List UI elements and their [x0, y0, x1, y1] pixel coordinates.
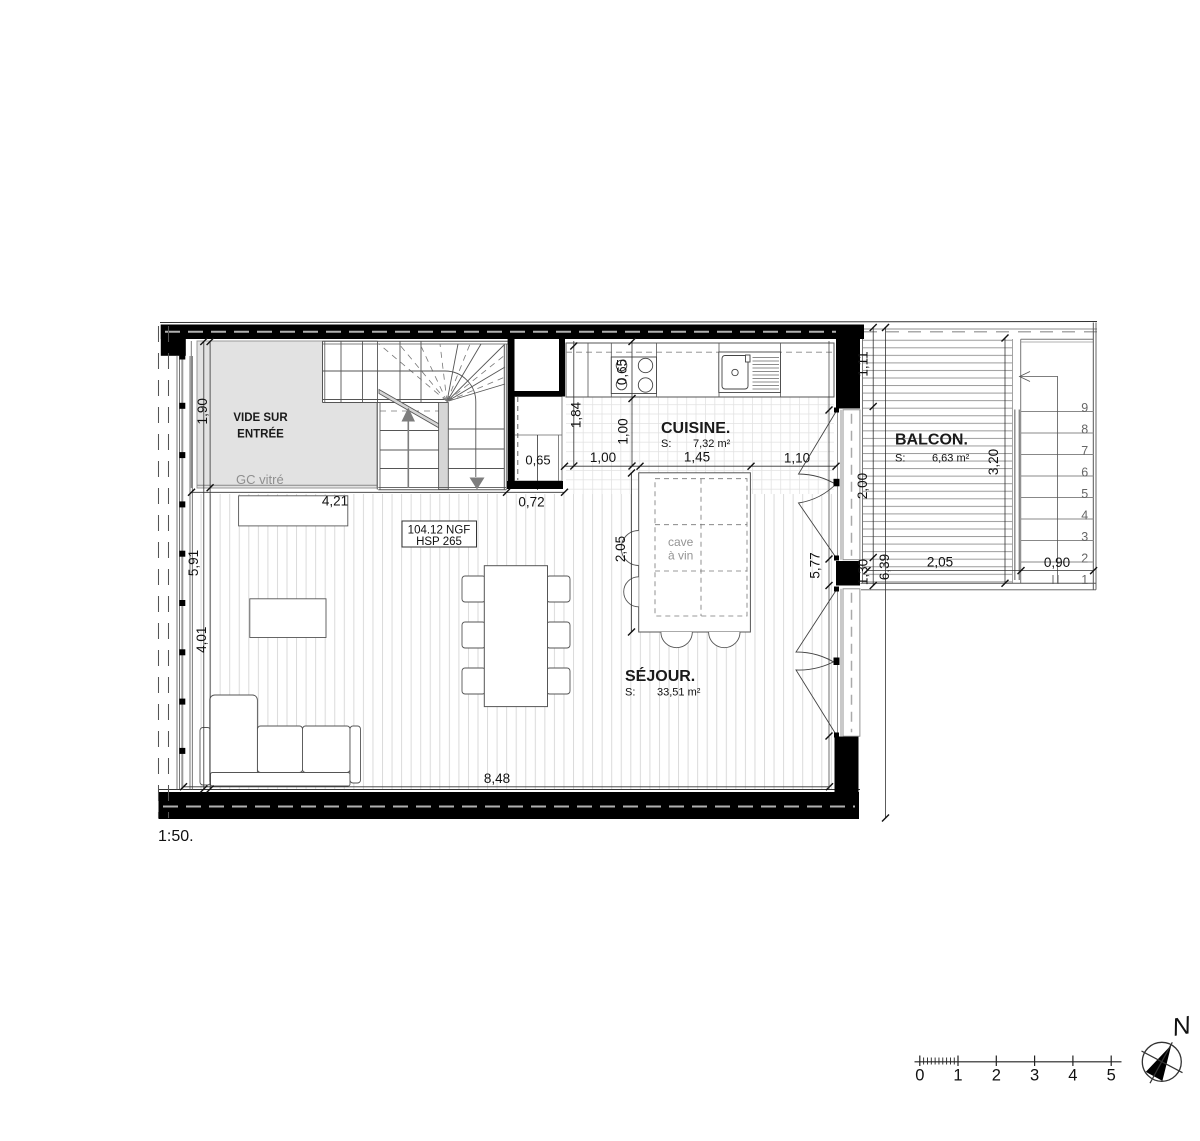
svg-text:1,00: 1,00	[616, 418, 631, 444]
svg-text:2: 2	[992, 1067, 1001, 1085]
svg-text:4,21: 4,21	[322, 494, 348, 509]
svg-text:3,20: 3,20	[986, 449, 1001, 475]
svg-text:9: 9	[1081, 401, 1088, 415]
svg-text:0,65: 0,65	[525, 453, 550, 468]
svg-text:4: 4	[1081, 509, 1088, 523]
svg-text:S:: S:	[625, 687, 635, 699]
svg-text:2,00: 2,00	[855, 473, 870, 499]
svg-text:5: 5	[1081, 487, 1088, 501]
svg-text:7,32 m²: 7,32 m²	[693, 438, 731, 450]
svg-text:1,10: 1,10	[784, 451, 810, 466]
svg-text:0: 0	[915, 1067, 924, 1085]
svg-text:6,39: 6,39	[877, 554, 892, 580]
svg-text:2,05: 2,05	[927, 555, 953, 570]
svg-text:8,48: 8,48	[484, 771, 510, 786]
svg-text:5,77: 5,77	[808, 552, 823, 578]
svg-text:VIDE SUR: VIDE SUR	[233, 412, 288, 424]
svg-text:N: N	[1170, 1011, 1194, 1042]
svg-text:0,65: 0,65	[615, 359, 630, 385]
svg-text:1: 1	[1081, 573, 1088, 587]
svg-text:6,63 m²: 6,63 m²	[932, 453, 970, 465]
svg-text:SÉJOUR.: SÉJOUR.	[625, 666, 695, 685]
svg-text:1,84: 1,84	[569, 401, 584, 428]
svg-text:S:: S:	[895, 453, 905, 465]
svg-text:3: 3	[1030, 1067, 1039, 1085]
svg-text:5,91: 5,91	[186, 550, 201, 576]
svg-text:5: 5	[1107, 1067, 1116, 1085]
svg-text:1,45: 1,45	[684, 450, 710, 465]
svg-text:3: 3	[1081, 530, 1088, 544]
svg-text:1:50.: 1:50.	[158, 828, 194, 845]
svg-text:HSP 265: HSP 265	[416, 536, 462, 548]
svg-text:1: 1	[953, 1067, 962, 1085]
svg-text:BALCON.: BALCON.	[895, 432, 968, 449]
svg-text:S:: S:	[661, 438, 671, 450]
svg-text:CUISINE.: CUISINE.	[661, 420, 730, 437]
svg-text:7: 7	[1081, 444, 1088, 458]
svg-text:1,30: 1,30	[856, 559, 871, 585]
svg-text:104.12 NGF: 104.12 NGF	[408, 525, 471, 537]
svg-text:2: 2	[1081, 552, 1088, 566]
svg-text:2,05: 2,05	[613, 536, 628, 562]
svg-text:cave: cave	[668, 535, 694, 549]
svg-text:8: 8	[1081, 423, 1088, 437]
svg-text:4: 4	[1068, 1067, 1077, 1085]
svg-text:1,11: 1,11	[856, 351, 871, 376]
svg-text:6: 6	[1081, 466, 1088, 480]
svg-text:33,51 m²: 33,51 m²	[657, 687, 701, 699]
svg-text:1,00: 1,00	[590, 450, 616, 465]
svg-text:ENTRÉE: ENTRÉE	[237, 428, 284, 441]
svg-text:1,90: 1,90	[195, 398, 210, 424]
svg-text:0,72: 0,72	[518, 495, 544, 510]
svg-text:0,90: 0,90	[1044, 555, 1070, 570]
svg-text:GC vitré: GC vitré	[236, 472, 284, 487]
svg-text:4,01: 4,01	[194, 627, 209, 653]
svg-text:à vin: à vin	[668, 549, 693, 563]
